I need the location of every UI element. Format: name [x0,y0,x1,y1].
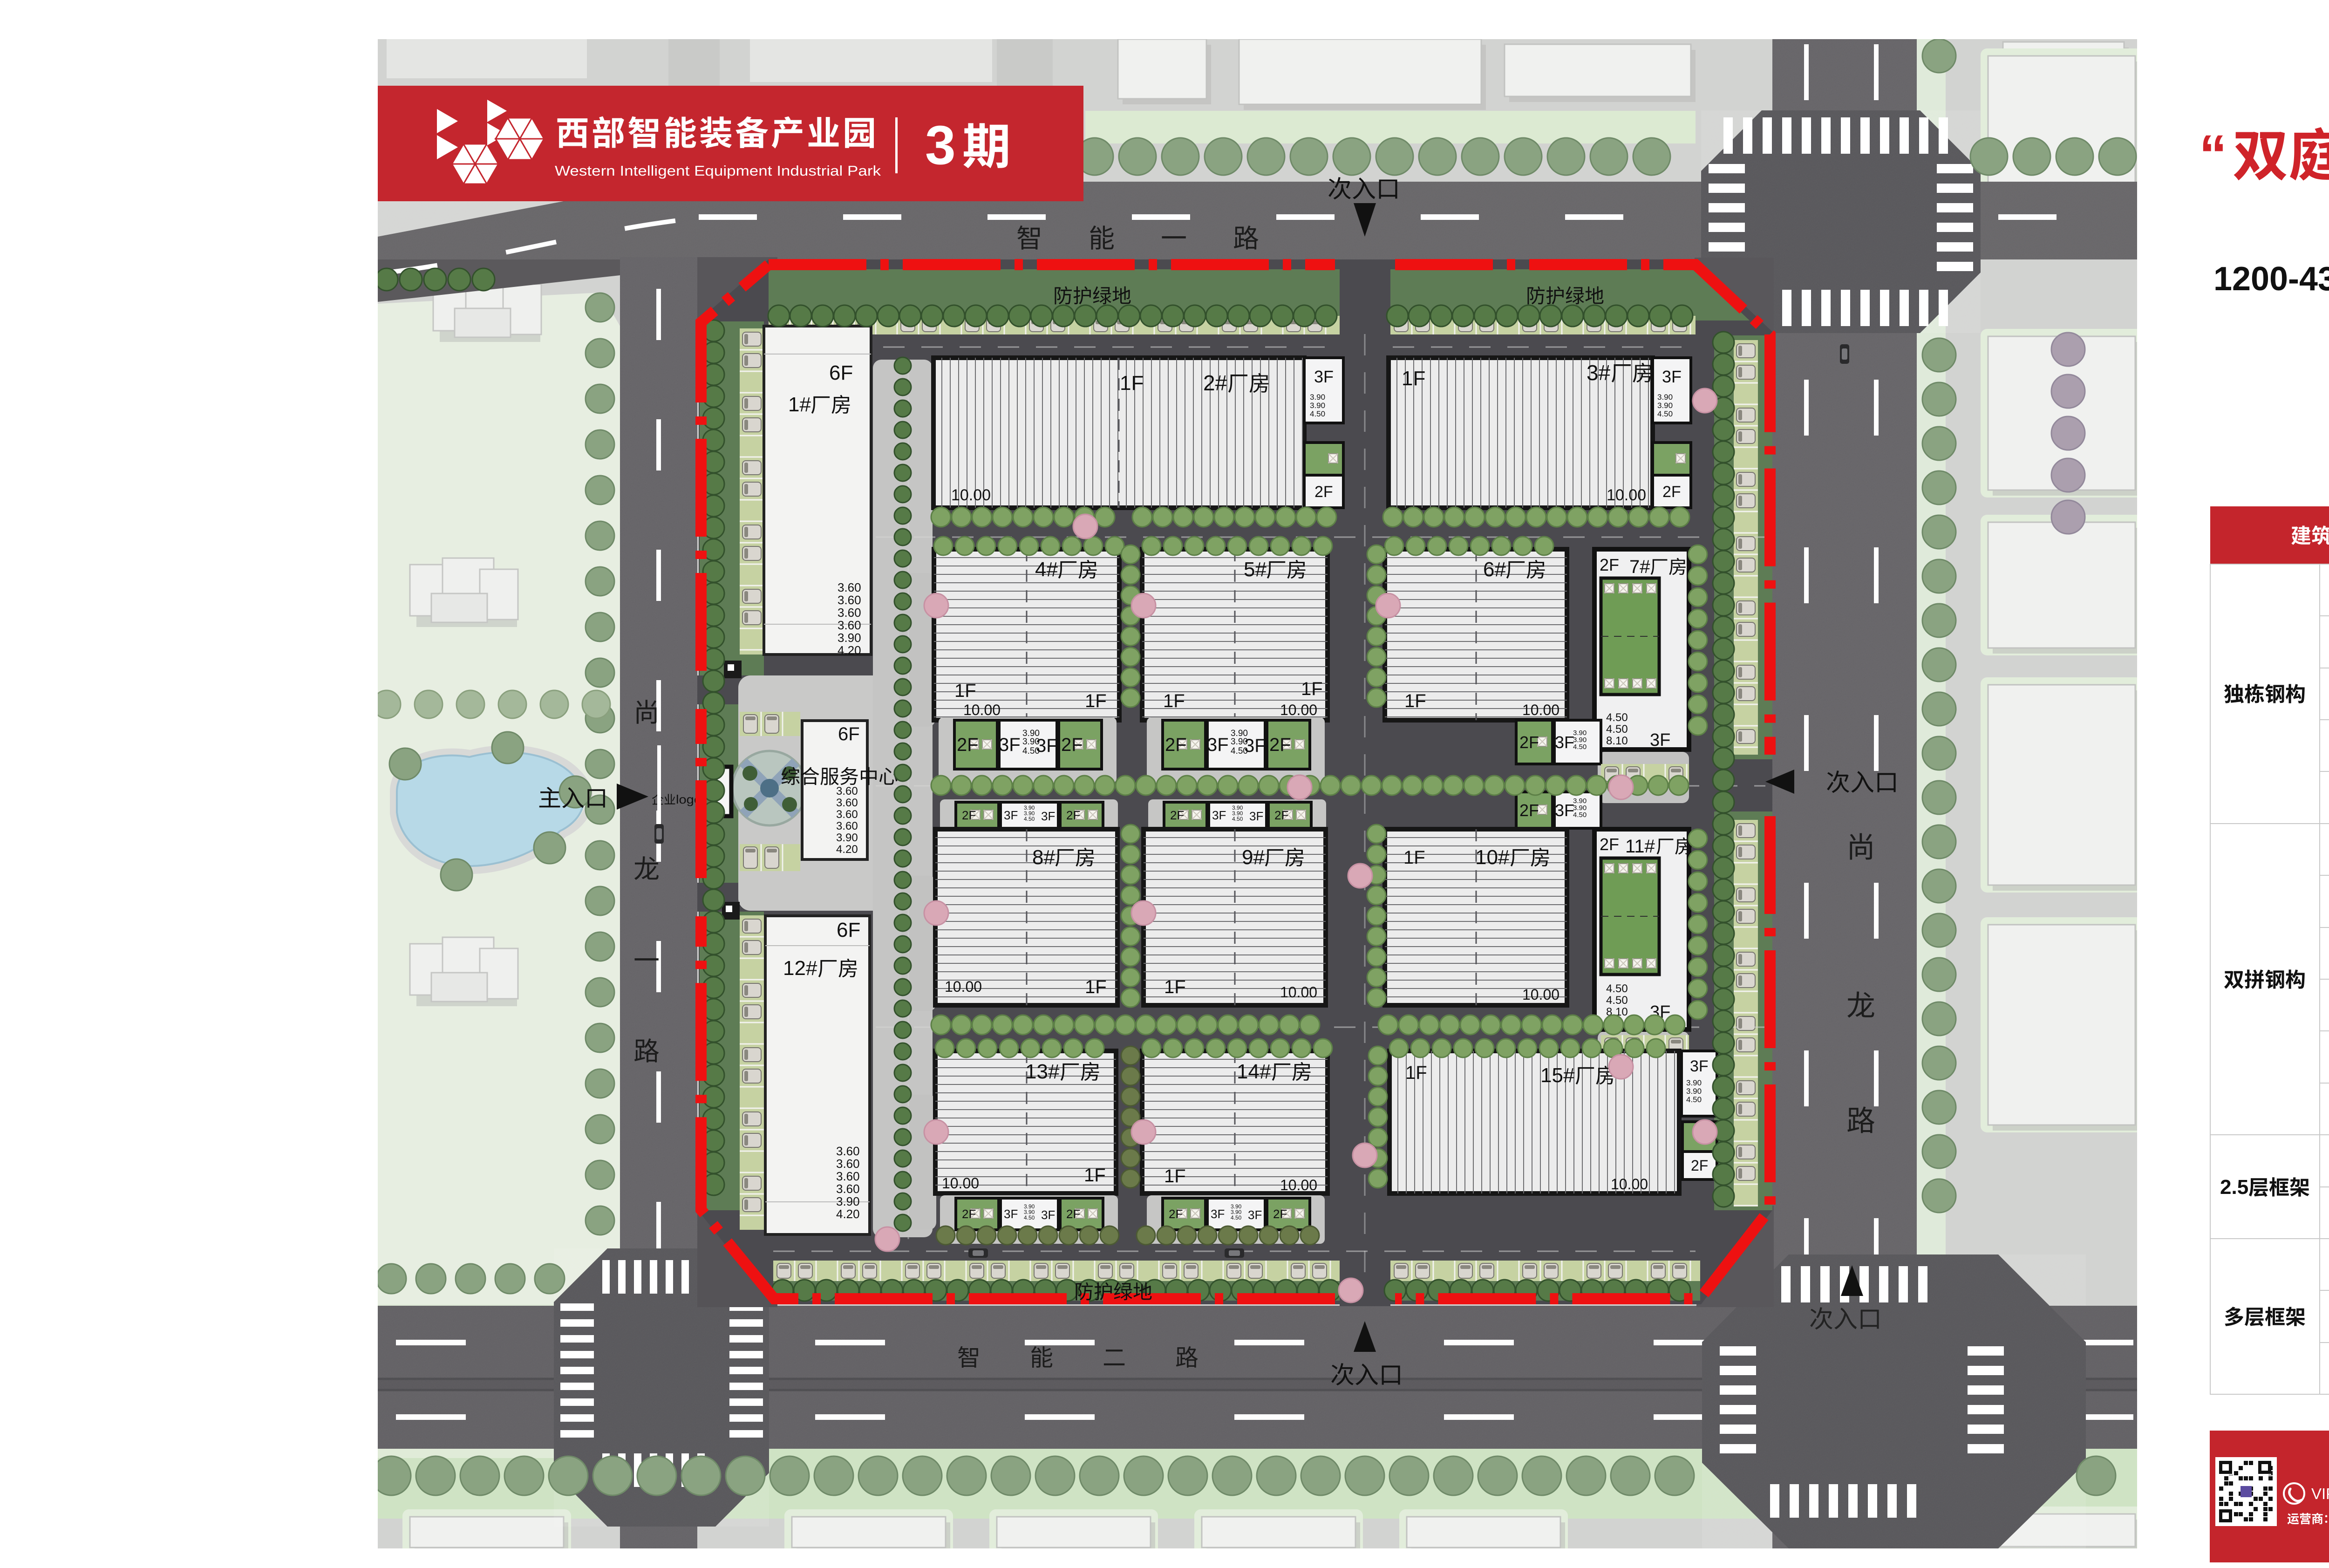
svg-text:4.50: 4.50 [1657,409,1673,418]
svg-text:4.50: 4.50 [1232,816,1243,822]
svg-text:2.5: 2.5 [2220,1176,2248,1199]
svg-text:10#: 10# [1475,846,1510,869]
svg-text:3.60: 3.60 [836,1144,860,1158]
svg-text:3F: 3F [999,735,1021,755]
svg-text:3.90: 3.90 [1686,1087,1702,1096]
svg-text:1F: 1F [954,681,976,701]
svg-text:13#: 13# [1025,1060,1060,1083]
svg-text:3.60: 3.60 [836,1157,860,1171]
svg-text:3F: 3F [1248,1208,1262,1222]
svg-text:2F: 2F [1274,808,1288,822]
svg-text:3F: 3F [1249,809,1263,823]
svg-text:2F: 2F [1273,1207,1287,1221]
svg-text:6F: 6F [837,919,860,941]
svg-text:3F: 3F [1212,808,1226,822]
svg-text:4.50: 4.50 [1024,1214,1035,1221]
svg-text:3F: 3F [1650,730,1670,750]
svg-text:1F: 1F [1084,1165,1106,1186]
svg-text:1F: 1F [1164,977,1186,997]
svg-text:9#: 9# [1242,846,1265,869]
svg-text:3.90: 3.90 [1686,1078,1702,1087]
svg-text:3.90: 3.90 [1310,393,1325,402]
svg-text:2F: 2F [962,1207,976,1221]
svg-text:6F: 6F [838,724,860,744]
svg-text:6F: 6F [829,361,853,384]
svg-text:1200-4300: 1200-4300 [2213,260,2329,298]
svg-text:3.90: 3.90 [1657,393,1673,402]
svg-text:3#: 3# [1587,361,1611,385]
svg-text:10.00: 10.00 [942,1175,979,1192]
svg-text:4.20: 4.20 [838,643,861,657]
svg-text:1F: 1F [1402,367,1425,390]
svg-text:2F: 2F [1061,735,1083,755]
svg-text:Western Intelligent Equipment: Western Intelligent Equipment Industrial… [555,163,881,179]
svg-text:3.60: 3.60 [836,808,858,821]
svg-text:4.50: 4.50 [1606,982,1628,995]
svg-text:2F: 2F [1519,801,1539,820]
svg-text:VIP-LINE: VIP-LINE [2311,1485,2329,1502]
svg-text:3F: 3F [1314,367,1334,386]
svg-text:2F: 2F [962,808,976,822]
svg-text:3.90: 3.90 [838,631,861,645]
svg-text:10.00: 10.00 [1611,1176,1648,1193]
svg-text:1F: 1F [1405,1063,1427,1083]
svg-text:8.10: 8.10 [1606,735,1628,747]
svg-text:3F: 3F [1662,367,1682,386]
svg-text:10.00: 10.00 [951,486,991,504]
svg-text:3.90: 3.90 [1657,401,1673,410]
svg-text:2F: 2F [1066,808,1080,822]
svg-text:3.90: 3.90 [1310,401,1325,410]
svg-text:3.60: 3.60 [838,593,861,607]
svg-text:3F: 3F [1207,735,1229,755]
svg-text:3.90: 3.90 [1022,737,1040,747]
svg-text:10.00: 10.00 [1522,986,1559,1003]
svg-text:3.90: 3.90 [836,832,858,844]
svg-text:3F: 3F [1690,1057,1709,1075]
svg-text:4.50: 4.50 [1022,746,1040,756]
svg-text:2F: 2F [1691,1157,1708,1174]
svg-text:3.60: 3.60 [836,1182,860,1196]
svg-text:6#: 6# [1483,558,1506,581]
svg-text:3.90: 3.90 [836,1194,860,1208]
svg-text:3.60: 3.60 [838,618,861,632]
svg-text:1F: 1F [1085,977,1107,997]
svg-text:2F: 2F [1169,1207,1183,1221]
svg-text:10.00: 10.00 [1522,702,1559,718]
svg-text:3F: 3F [1211,1207,1225,1221]
svg-text:12#: 12# [783,957,817,980]
svg-text:3F: 3F [1004,808,1018,822]
svg-text:10.00: 10.00 [1280,1177,1317,1193]
svg-text:4.50: 4.50 [1573,811,1587,819]
svg-text:4.50: 4.50 [1024,816,1035,822]
svg-text:1F: 1F [1120,372,1144,395]
svg-text:4.50: 4.50 [1606,994,1628,1007]
svg-text:3F: 3F [1555,801,1574,820]
svg-text:14#: 14# [1237,1060,1271,1083]
svg-text:2F: 2F [1066,1207,1080,1221]
svg-text:15#: 15# [1540,1064,1575,1087]
svg-text:4#: 4# [1035,558,1058,581]
svg-text:3.60: 3.60 [836,785,858,798]
svg-text:10.00: 10.00 [963,702,1001,718]
svg-text:：: ： [2323,1513,2329,1525]
svg-text:1F: 1F [1163,691,1185,711]
svg-text:3: 3 [925,115,956,176]
svg-text:3.60: 3.60 [836,797,858,809]
svg-text:4.50: 4.50 [1606,711,1628,724]
svg-text:4.50: 4.50 [1686,1095,1702,1104]
svg-text:3F: 3F [1041,809,1055,823]
svg-text:2F: 2F [1269,735,1291,755]
svg-text:“: “ [2199,123,2227,186]
svg-text:3.60: 3.60 [838,606,861,620]
svg-text:2F: 2F [1662,483,1681,501]
svg-text:2F: 2F [1600,835,1619,854]
svg-text:11#: 11# [1625,836,1655,857]
svg-text:2F: 2F [1519,733,1539,752]
svg-text:4.50: 4.50 [1573,743,1587,751]
svg-text:3F: 3F [1555,733,1574,752]
svg-text:10.00: 10.00 [1607,486,1646,504]
svg-text:10.00: 10.00 [1280,984,1317,1001]
svg-text:4.20: 4.20 [836,843,858,856]
svg-text:10.00: 10.00 [1280,702,1317,718]
svg-text:2#: 2# [1203,371,1227,395]
svg-text:4.50: 4.50 [1606,723,1628,736]
svg-text:4.50: 4.50 [1310,409,1325,418]
svg-text:1#: 1# [788,393,811,416]
svg-text:8#: 8# [1032,846,1055,869]
svg-text:3.90: 3.90 [1231,737,1248,747]
svg-text:2F: 2F [1165,735,1187,755]
svg-text:4.50: 4.50 [1231,746,1248,756]
svg-text:10.00: 10.00 [945,978,982,995]
svg-text:2F: 2F [1170,808,1184,822]
svg-text:1F: 1F [1301,679,1323,699]
svg-text:2F: 2F [1314,483,1333,501]
svg-text:3F: 3F [1004,1207,1018,1221]
svg-text:1F: 1F [1085,691,1107,711]
svg-text:1F: 1F [1404,691,1426,711]
svg-text:3.60: 3.60 [838,580,861,594]
svg-text:2F: 2F [957,735,979,755]
svg-text:3.60: 3.60 [836,1169,860,1183]
svg-text:4.20: 4.20 [836,1207,860,1221]
svg-text:3.60: 3.60 [836,820,858,832]
svg-text:4.50: 4.50 [1231,1214,1242,1221]
svg-text:5#: 5# [1244,558,1267,581]
svg-text:1F: 1F [1164,1166,1186,1186]
svg-text:2F: 2F [1600,555,1619,574]
svg-text:7#: 7# [1629,557,1650,577]
svg-text:1F: 1F [1403,847,1425,868]
svg-text:3F: 3F [1041,1208,1055,1222]
